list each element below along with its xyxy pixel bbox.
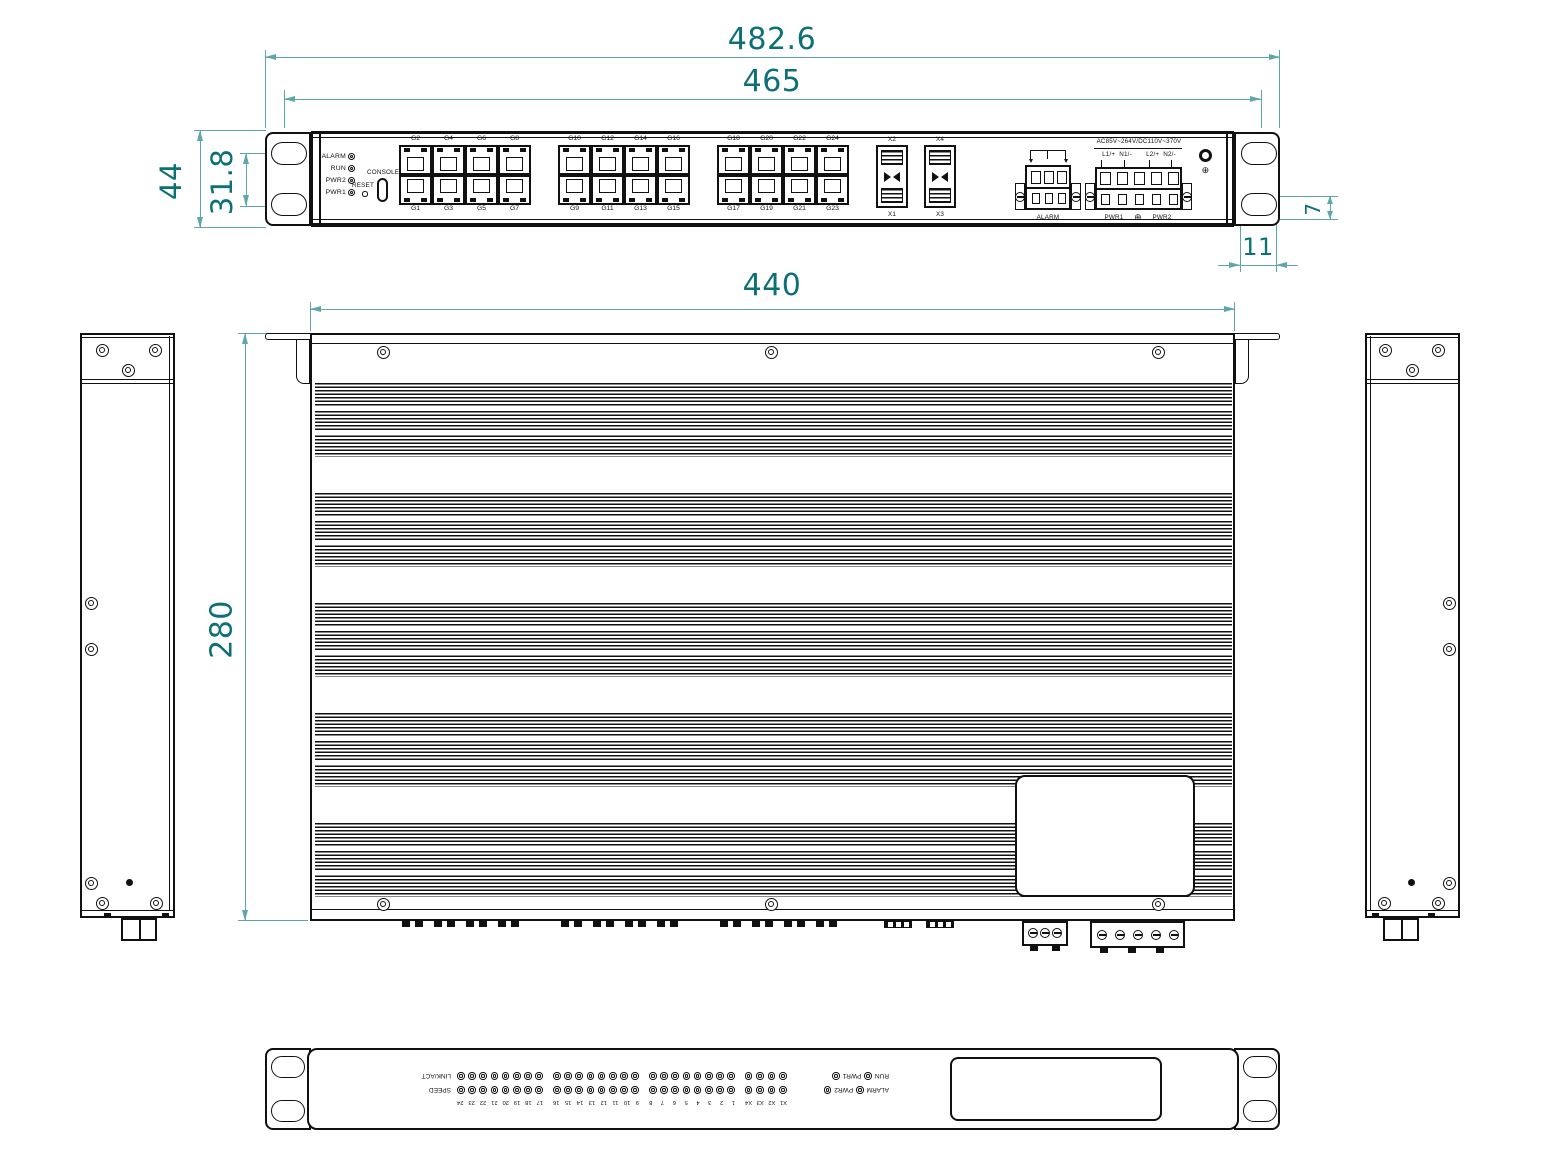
- port-number: 17: [537, 1100, 543, 1106]
- pin-tab: [784, 921, 792, 927]
- port-number-group: 910111213141516: [553, 1100, 639, 1106]
- row-label: SPEED: [429, 1087, 451, 1094]
- led-group: [745, 1072, 787, 1080]
- port-number: 2: [720, 1100, 723, 1106]
- pin-tab: [638, 921, 646, 927]
- terminal-flange: [1182, 183, 1192, 210]
- port-number-group: 1718192021222324: [457, 1100, 543, 1106]
- port-number-group: 12345678: [649, 1100, 735, 1106]
- screw-icon: [96, 897, 109, 910]
- dimension-chassis-width: 440: [672, 268, 872, 303]
- console-port[interactable]: [377, 178, 388, 202]
- led-dot: [632, 1072, 640, 1080]
- port-number: 5: [685, 1100, 688, 1106]
- port-label: G4: [432, 135, 465, 145]
- port-label: G1: [399, 205, 432, 215]
- screw-icon: [1379, 344, 1392, 357]
- rack-ear-hook-left: [296, 339, 310, 384]
- sfp-label: X4: [924, 136, 956, 143]
- dimension-mount-span: 465: [672, 64, 872, 99]
- led-group: [745, 1086, 787, 1094]
- rj45-port[interactable]: [657, 175, 690, 205]
- sfp-cage[interactable]: [876, 145, 908, 208]
- screw-icon: [1432, 897, 1445, 910]
- led-group: [649, 1086, 735, 1094]
- mount-hole: [1243, 1100, 1277, 1122]
- led-dot: [513, 1072, 521, 1080]
- rack-ear-hook-right: [1235, 339, 1249, 384]
- port-label: G10: [558, 135, 591, 145]
- rj45-port[interactable]: [783, 175, 816, 205]
- run-led-icon: [864, 1072, 872, 1080]
- run-led-icon: [348, 165, 355, 172]
- port-number: X3: [757, 1100, 764, 1106]
- dimension-overall-width: 482.6: [672, 22, 872, 57]
- sfp-edge: [884, 921, 912, 928]
- screw-icon: [122, 364, 135, 377]
- led-dot: [649, 1086, 657, 1094]
- pin-tab: [670, 921, 678, 927]
- ground-symbol-icon: ⊕: [1199, 165, 1212, 176]
- led-dot: [768, 1086, 776, 1094]
- pin-tab: [816, 921, 824, 927]
- pin-tab: [720, 921, 728, 927]
- port-label: G20: [750, 135, 783, 145]
- rj45-port[interactable]: [750, 175, 783, 205]
- screw-icon: [1378, 897, 1391, 910]
- rj45-port[interactable]: [498, 175, 531, 205]
- led-dot: [728, 1086, 736, 1094]
- port-number: 19: [514, 1100, 520, 1106]
- port-label: G3: [432, 205, 465, 215]
- screw-icon: [1443, 597, 1456, 610]
- sfp-latch-icon: [932, 172, 948, 182]
- pin-tab: [498, 921, 506, 927]
- led-dot: [468, 1086, 476, 1094]
- screw-icon: [765, 346, 778, 359]
- screw-icon: [377, 898, 390, 911]
- port-number: 20: [502, 1100, 508, 1106]
- port-label: G14: [624, 135, 657, 145]
- led-dot: [502, 1086, 510, 1094]
- screw-icon: [1406, 364, 1419, 377]
- dimension-line: [265, 57, 1280, 58]
- led-dot: [632, 1086, 640, 1094]
- sfp-latch-icon: [884, 172, 900, 182]
- screw-icon: [149, 344, 162, 357]
- terminal-flange: [1085, 183, 1095, 210]
- pin-tab: [511, 921, 519, 927]
- port-number: X4: [745, 1100, 752, 1106]
- side-panel: [80, 333, 175, 918]
- screw-icon: [1152, 898, 1165, 911]
- port-number: 1: [732, 1100, 735, 1106]
- rj45-pin-row: [402, 921, 530, 927]
- led-dot: [671, 1086, 679, 1094]
- port-number: 9: [636, 1100, 639, 1106]
- port-label: G16: [657, 135, 690, 145]
- led-dot: [513, 1086, 521, 1094]
- led-dot: [609, 1072, 617, 1080]
- alarm-terminal-top: [1022, 921, 1068, 946]
- rj45-port[interactable]: [498, 145, 531, 175]
- led-dot: [553, 1072, 561, 1080]
- rj45-bank-1: G2G4G6G8 G1G3G5G7: [399, 135, 531, 215]
- rj45-bank-3: G18G20G22G24 G17G19G21G23: [717, 135, 849, 215]
- sfp-cage[interactable]: [924, 145, 956, 208]
- screw-icon: [1432, 344, 1445, 357]
- port-label: G15: [657, 205, 690, 215]
- power-input1-label: L1/+ N1/-: [1094, 151, 1140, 158]
- rj45-port[interactable]: [717, 145, 750, 175]
- port-number: 13: [589, 1100, 595, 1106]
- rj45-port[interactable]: [432, 175, 465, 205]
- port-number: 4: [696, 1100, 699, 1106]
- relay-contact-icon: [1026, 148, 1070, 164]
- led-dot: [671, 1072, 679, 1080]
- led-dot: [716, 1086, 724, 1094]
- screw-icon: [1443, 643, 1456, 656]
- pin-tab: [447, 921, 455, 927]
- led-dot: [598, 1072, 606, 1080]
- port-label: G12: [591, 135, 624, 145]
- pin-hole: [1408, 879, 1415, 886]
- port-label: G19: [750, 205, 783, 215]
- led-label: PWR2: [834, 1087, 853, 1094]
- rj45-port[interactable]: [657, 145, 690, 175]
- reset-button[interactable]: [362, 191, 368, 197]
- rj45-port[interactable]: [465, 175, 498, 205]
- led-group: [457, 1086, 543, 1094]
- led-dot: [780, 1072, 788, 1080]
- led-dot: [536, 1086, 544, 1094]
- rj45-port[interactable]: [624, 145, 657, 175]
- led-label: RUN: [331, 165, 346, 172]
- port-label: G5: [465, 205, 498, 215]
- screw-icon: [1152, 346, 1165, 359]
- side-panel: [1365, 333, 1460, 918]
- sfp-number-group: X1X2X3X4: [745, 1100, 787, 1106]
- rack-ear-right: [1234, 1048, 1280, 1130]
- heatsink-fins: [315, 493, 1232, 567]
- pin-tab: [593, 921, 601, 927]
- led-dot: [683, 1072, 691, 1080]
- rj45-pin-row: [561, 921, 689, 927]
- rj45-port[interactable]: [750, 145, 783, 175]
- pwr1-led-icon: [348, 189, 355, 196]
- led-silkscreen-flipped: X1X2X3X4 12345678 910111213141516 171819…: [423, 1064, 889, 1108]
- port-number: 10: [624, 1100, 630, 1106]
- terminal-flange: [1071, 183, 1081, 210]
- led-dot: [768, 1072, 776, 1080]
- port-label: G2: [399, 135, 432, 145]
- led-dot: [575, 1086, 583, 1094]
- led-label: PWR1: [843, 1073, 862, 1080]
- led-dot: [457, 1072, 465, 1080]
- heatsink-fins: [315, 603, 1232, 677]
- screw-icon: [85, 877, 98, 890]
- screw-icon: [85, 643, 98, 656]
- pwr1-terminal-label: PWR1: [1100, 214, 1128, 221]
- sfp-label: X1: [876, 211, 908, 218]
- led-group: [553, 1072, 639, 1080]
- dimension-chassis-depth: 280: [205, 595, 240, 665]
- port-number: 23: [468, 1100, 474, 1106]
- led-dot: [457, 1086, 465, 1094]
- port-label: G24: [816, 135, 849, 145]
- led-dot: [587, 1086, 595, 1094]
- rj45-port[interactable]: [558, 145, 591, 175]
- port-number: 14: [577, 1100, 583, 1106]
- led-dot: [660, 1086, 668, 1094]
- rj45-port[interactable]: [432, 145, 465, 175]
- port-number: 21: [491, 1100, 497, 1106]
- rj45-bank-2: G10G12G14G16 G9G11G13G15: [558, 135, 690, 215]
- led-dot: [553, 1086, 561, 1094]
- led-dot: [780, 1086, 788, 1094]
- port-number: 7: [661, 1100, 664, 1106]
- rj45-port[interactable]: [624, 175, 657, 205]
- pin-hole: [126, 879, 133, 886]
- port-number: X1: [780, 1100, 787, 1106]
- screw-icon: [96, 344, 109, 357]
- pwr1-led-icon: [832, 1072, 840, 1080]
- power-terminal-block[interactable]: [1095, 167, 1182, 210]
- terminal-side: [1383, 918, 1419, 941]
- sfp-edge: [926, 921, 954, 928]
- port-number: 24: [457, 1100, 463, 1106]
- port-number: 8: [649, 1100, 652, 1106]
- led-dot: [728, 1072, 736, 1080]
- technical-drawing-canvas: 482.6 465 44 31.8 7 11: [0, 0, 1562, 1168]
- led-dot: [468, 1072, 476, 1080]
- status-led-block: ALARM RUN PWR2 PWR1: [303, 150, 355, 198]
- led-label: PWR2: [326, 177, 346, 184]
- led-dot: [705, 1086, 713, 1094]
- led-dot: [683, 1086, 691, 1094]
- rack-ear-left: [265, 1048, 311, 1130]
- screw-icon: [765, 898, 778, 911]
- alarm-terminal-label: ALARM: [1028, 214, 1068, 221]
- pin-tab: [434, 921, 442, 927]
- dimension-front-height: 44: [154, 146, 188, 216]
- led-dot: [694, 1072, 702, 1080]
- power-input2-label: L2/+ N2/-: [1140, 151, 1182, 158]
- port-label: G17: [717, 205, 750, 215]
- power-rating-label: AC85V~264V/DC110V~370V: [1092, 138, 1186, 145]
- port-number: 12: [601, 1100, 607, 1106]
- led-dot: [564, 1072, 572, 1080]
- port-number: 16: [553, 1100, 559, 1106]
- pwr2-terminal-label: PWR2: [1148, 214, 1176, 221]
- pin-tab: [561, 921, 569, 927]
- led-dot: [757, 1072, 765, 1080]
- pin-tab: [479, 921, 487, 927]
- mount-hole: [271, 1100, 305, 1122]
- ground-stud: [1199, 149, 1212, 162]
- led-dot: [649, 1072, 657, 1080]
- port-label: G9: [558, 205, 591, 215]
- pin-tab: [797, 921, 805, 927]
- port-number: 18: [525, 1100, 531, 1106]
- mount-hole: [271, 193, 307, 216]
- sfp-label: X3: [924, 211, 956, 218]
- port-label: G21: [783, 205, 816, 215]
- rj45-port[interactable]: [558, 175, 591, 205]
- led-dot: [745, 1072, 753, 1080]
- led-dot: [587, 1072, 595, 1080]
- led-label: ALARM: [867, 1087, 889, 1094]
- pin-tab: [415, 921, 423, 927]
- rj45-port[interactable]: [783, 145, 816, 175]
- power-terminal-top: [1090, 921, 1185, 948]
- alarm-led-icon: [348, 153, 355, 160]
- reset-label: RESET: [352, 182, 374, 189]
- led-group: [649, 1072, 735, 1080]
- rj45-port[interactable]: [816, 145, 849, 175]
- pin-tab: [829, 921, 837, 927]
- led-dot: [620, 1086, 628, 1094]
- pin-tab: [752, 921, 760, 927]
- port-label: G13: [624, 205, 657, 215]
- screw-icon: [85, 597, 98, 610]
- led-dot: [479, 1086, 487, 1094]
- dimension-ear-hole-width: 11: [1238, 233, 1278, 261]
- led-dot: [491, 1072, 499, 1080]
- screw-icon: [1443, 877, 1456, 890]
- rj45-port[interactable]: [591, 145, 624, 175]
- rj45-port[interactable]: [717, 175, 750, 205]
- port-label: G23: [816, 205, 849, 215]
- led-dot: [536, 1072, 544, 1080]
- ground-symbol-icon: ⊕: [1130, 212, 1146, 223]
- port-label: G18: [717, 135, 750, 145]
- mount-hole: [1243, 1056, 1277, 1078]
- pin-tab: [765, 921, 773, 927]
- product-label-plate: [1015, 775, 1195, 897]
- port-label: G7: [498, 205, 531, 215]
- screw-icon: [377, 346, 390, 359]
- mount-hole: [1241, 142, 1277, 165]
- led-dot: [524, 1072, 532, 1080]
- pin-tab: [402, 921, 410, 927]
- mount-hole: [271, 142, 307, 165]
- led-dot: [564, 1086, 572, 1094]
- pin-tab: [574, 921, 582, 927]
- port-label: G11: [591, 205, 624, 215]
- terminal-flange: [1015, 183, 1025, 210]
- terminal-side: [121, 918, 157, 941]
- console-label: CONSOLE: [367, 169, 399, 176]
- heatsink-fins: [315, 383, 1232, 457]
- led-dot: [694, 1086, 702, 1094]
- led-dot: [757, 1086, 765, 1094]
- led-group: [553, 1086, 639, 1094]
- rj45-port[interactable]: [465, 145, 498, 175]
- pin-tab: [606, 921, 614, 927]
- alarm-led-icon: [856, 1086, 864, 1094]
- led-dot: [660, 1072, 668, 1080]
- mount-hole: [1241, 193, 1277, 216]
- pin-tab: [466, 921, 474, 927]
- port-number: 11: [612, 1100, 618, 1106]
- led-dot: [524, 1086, 532, 1094]
- led-label: RUN: [875, 1073, 889, 1080]
- led-dot: [575, 1072, 583, 1080]
- rj45-port[interactable]: [399, 175, 432, 205]
- led-dot: [705, 1072, 713, 1080]
- pin-tab: [733, 921, 741, 927]
- rack-ear-right: [1234, 132, 1280, 226]
- port-number: 15: [565, 1100, 571, 1106]
- port-label: G8: [498, 135, 531, 145]
- port-label: G22: [783, 135, 816, 145]
- led-dot: [745, 1086, 753, 1094]
- pin-tab: [625, 921, 633, 927]
- row-label: LINK/ACT: [422, 1073, 451, 1080]
- rj45-port[interactable]: [399, 145, 432, 175]
- screw-icon: [150, 897, 163, 910]
- mount-hole: [271, 1056, 305, 1078]
- port-number: 3: [708, 1100, 711, 1106]
- led-dot: [716, 1072, 724, 1080]
- port-number: X2: [768, 1100, 775, 1106]
- led-group: [457, 1072, 543, 1080]
- port-number: 22: [480, 1100, 486, 1106]
- pwr2-led-icon: [824, 1086, 832, 1094]
- rj45-pin-row: [720, 921, 848, 927]
- led-dot: [491, 1086, 499, 1094]
- sfp-label: X2: [876, 136, 908, 143]
- led-label: PWR1: [326, 189, 346, 196]
- pin-tab: [657, 921, 665, 927]
- product-label-plate: [950, 1057, 1162, 1121]
- led-dot: [598, 1086, 606, 1094]
- alarm-terminal-block[interactable]: [1025, 165, 1071, 210]
- led-dot: [502, 1072, 510, 1080]
- port-number: 6: [673, 1100, 676, 1106]
- dimension-hole-pitch: 31.8: [205, 147, 239, 217]
- led-dot: [479, 1072, 487, 1080]
- port-label: G6: [465, 135, 498, 145]
- rj45-port[interactable]: [591, 175, 624, 205]
- led-dot: [620, 1072, 628, 1080]
- led-dot: [609, 1086, 617, 1094]
- led-label: ALARM: [322, 153, 346, 160]
- rj45-port[interactable]: [816, 175, 849, 205]
